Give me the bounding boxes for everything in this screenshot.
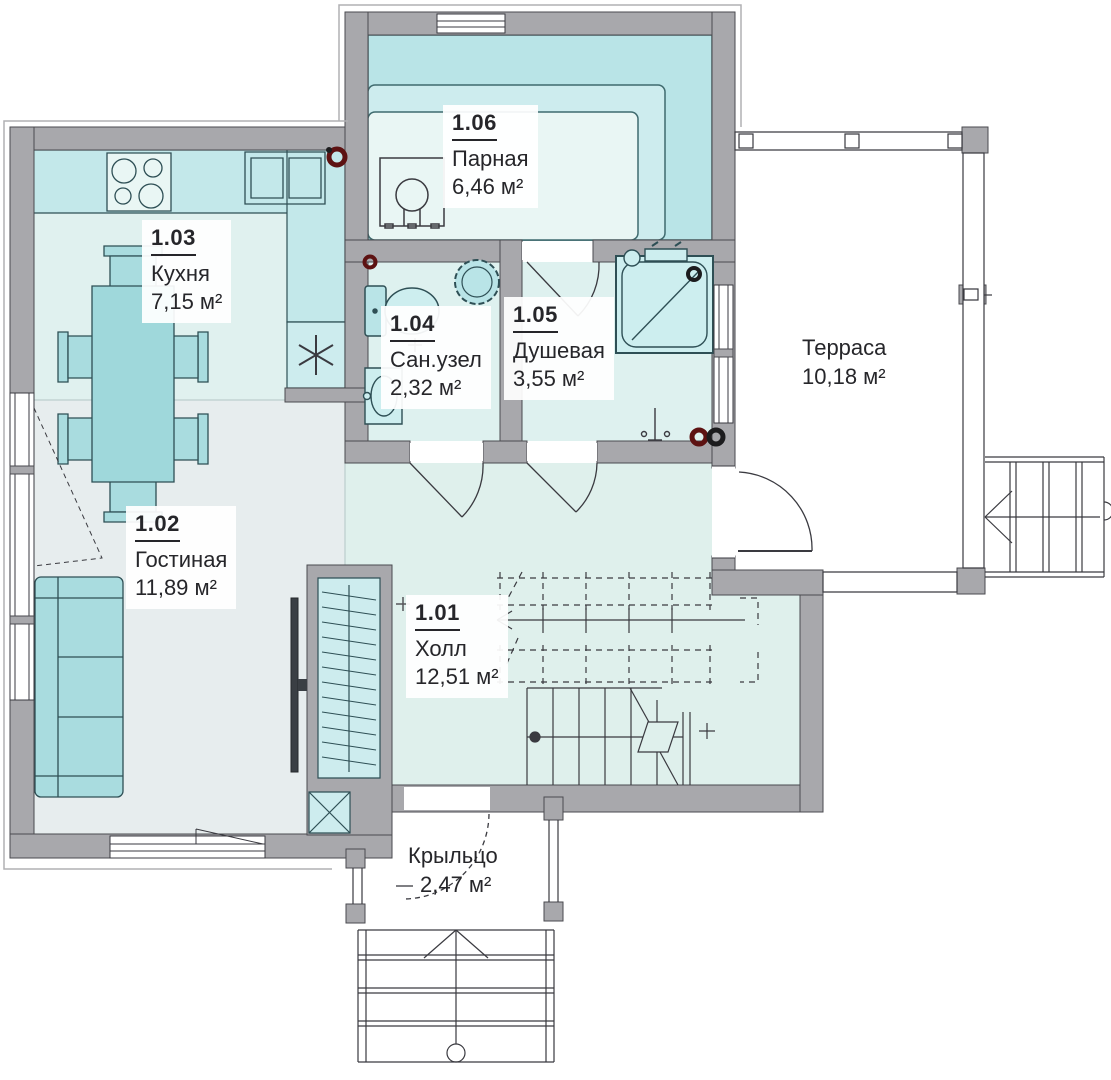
room-area: 2,47 м²: [408, 871, 498, 900]
fridge-nook-wall: [285, 388, 368, 402]
sauna-stove-icon: [380, 158, 444, 228]
porch-post: [544, 902, 563, 921]
window: [437, 14, 505, 33]
room-area: 3,55 м²: [513, 365, 605, 394]
room-name: Холл: [415, 635, 499, 664]
sauna-top-wall: [345, 12, 735, 35]
room-name: Кухня: [151, 260, 222, 289]
handrail-notch: [1104, 502, 1111, 520]
room-number: 1.01: [415, 599, 460, 631]
floor-plan-page: 1.06 Парная 6,46 м² 1.03 Кухня 7,15 м² 1…: [0, 0, 1111, 1080]
room-name: Терраса: [802, 334, 886, 363]
porch-post: [346, 849, 365, 868]
kitchen-top-wall: [10, 127, 345, 150]
sofa: [35, 577, 123, 797]
survey-point-icon: [447, 1044, 465, 1062]
room-label-kitchen: 1.03 Кухня 7,15 м²: [142, 220, 231, 323]
hall-right-wall: [800, 570, 823, 812]
stove-icon: [107, 153, 171, 211]
room-number: 1.05: [513, 301, 558, 333]
room-area: 10,18 м²: [802, 363, 886, 392]
valve-icon: [326, 147, 332, 153]
room-name: Парная: [452, 145, 529, 174]
room-name: Гостиная: [135, 546, 227, 575]
room-number: 1.04: [390, 310, 435, 342]
room-area: 2,32 м²: [390, 374, 482, 403]
shower-cabin-icon: [616, 242, 713, 353]
tv-mount: [298, 679, 307, 691]
room-number: 1.06: [452, 109, 497, 141]
tv-icon: [291, 598, 298, 772]
room-area: 11,89 м²: [135, 574, 227, 603]
room-label-hall: 1.01 Холл 12,51 м²: [406, 595, 508, 698]
room-area: 7,15 м²: [151, 288, 222, 317]
bath-bottom-wall: [345, 441, 410, 463]
room-name: Сан.узел: [390, 346, 482, 375]
room-area: 6,46 м²: [452, 173, 529, 202]
porch-post: [346, 904, 365, 923]
terrace-post: [962, 127, 988, 153]
window: [714, 285, 733, 423]
room-name: Душевая: [513, 337, 605, 366]
room-label-terrace: Терраса 10,18 м²: [798, 332, 890, 393]
room-label-porch: Крыльцо 2,47 м²: [404, 840, 502, 901]
room-area: 12,51 м²: [415, 663, 499, 692]
sauna-bottom-wall: [345, 240, 520, 262]
porch-steps: [358, 930, 554, 1062]
terrace-post: [957, 568, 985, 594]
room-label-living: 1.02 Гостиная 11,89 м²: [126, 506, 236, 609]
porch-post: [544, 797, 563, 820]
room-number: 1.03: [151, 224, 196, 256]
terrace-bottom-wall: [712, 570, 823, 595]
room-name: Крыльцо: [408, 842, 498, 871]
washing-machine-icon: [455, 260, 499, 304]
room-label-sauna: 1.06 Парная 6,46 м²: [443, 105, 538, 208]
room-number: 1.02: [135, 510, 180, 542]
room-label-shower: 1.05 Душевая 3,55 м²: [504, 297, 614, 400]
room-label-wc: 1.04 Сан.узел 2,32 м²: [381, 306, 491, 409]
terrace-steps: [985, 457, 1111, 577]
